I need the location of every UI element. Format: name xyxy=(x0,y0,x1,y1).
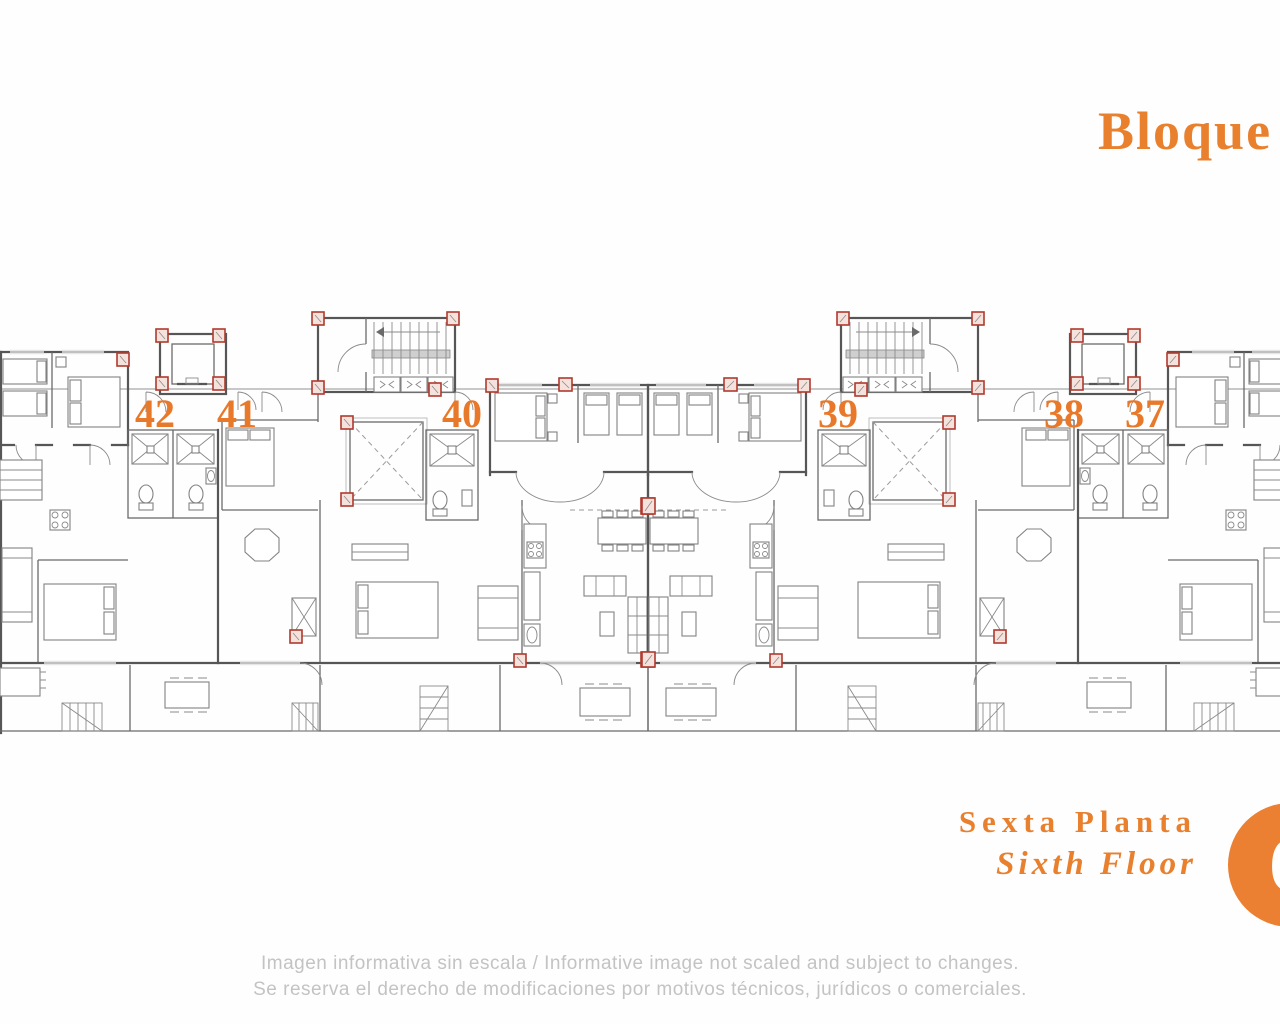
bathrooms-left xyxy=(128,430,218,518)
floor-label-english: Sixth Floor xyxy=(996,846,1197,883)
apartment-number-41: 41 xyxy=(217,391,257,436)
plan-right-half xyxy=(642,312,1280,733)
floor-number: 6 xyxy=(1269,823,1280,908)
apartment-number-42: 42 xyxy=(135,391,175,436)
apartment-number-37: 37 xyxy=(1125,391,1165,436)
apt42-living xyxy=(0,460,128,663)
floor-label-spanish: Sexta Planta xyxy=(959,804,1197,840)
apartment-number-38: 38 xyxy=(1044,391,1084,436)
apt40-living xyxy=(352,475,648,663)
apartment-number-39: 39 xyxy=(818,391,858,436)
disclaimer-line-2: Se reserva el derecho de modificaciones … xyxy=(0,977,1280,1003)
plan-left-half xyxy=(0,312,654,733)
stairwell-left xyxy=(318,318,455,392)
bedroom-block-top-left xyxy=(0,352,128,465)
center-bedrooms-left xyxy=(490,385,648,502)
shaft-x-left xyxy=(346,418,427,504)
apartment-number-40: 40 xyxy=(442,391,482,436)
apartment-numbers: 42 41 40 39 38 37 xyxy=(135,391,1165,436)
terraces-left xyxy=(0,663,648,731)
disclaimer: Imagen informativa sin escala / Informat… xyxy=(0,951,1280,1003)
disclaimer-line-1: Imagen informativa sin escala / Informat… xyxy=(0,951,1280,977)
floor-plan-page: Bloque xyxy=(0,0,1280,1024)
